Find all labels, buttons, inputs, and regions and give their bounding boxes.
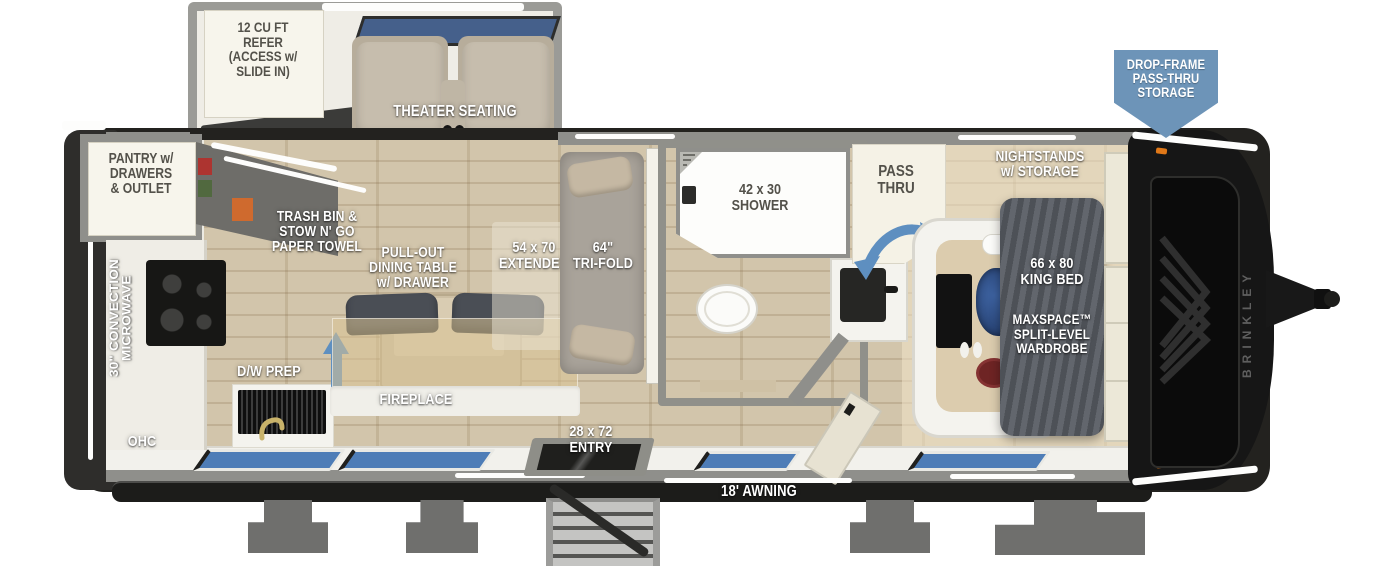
pantry-item-green — [198, 180, 212, 197]
fireplace-label: FIREPLACE — [366, 392, 467, 408]
awning-label: 18' AWNING — [696, 484, 822, 500]
window-living — [337, 449, 495, 471]
shower-corner-shelf-icon — [680, 152, 702, 174]
bath-faucet-icon — [884, 286, 898, 293]
floorplan-diagram: 12 CU FT REFER (ACCESS w/ SLIDE IN) THEA… — [0, 0, 1400, 566]
nightstands-label: NIGHTSTANDS w/ STORAGE — [977, 150, 1103, 180]
slipper-right — [973, 342, 982, 358]
theater-label: THEATER SEATING — [367, 104, 543, 120]
theater-seat-left — [356, 42, 444, 142]
feature-badge-label: DROP-FRAME PASS-THRU STORAGE — [1122, 58, 1209, 100]
pantry-label: PANTRY w/ DRAWERS & OUTLET — [92, 152, 189, 198]
kitchen-faucet-icon — [256, 408, 290, 442]
refer-label: 12 CU FT REFER (ACCESS w/ SLIDE IN) — [210, 20, 316, 79]
microwave-label: 30" CONVECTION MICROWAVE — [108, 242, 148, 394]
hitch-tongue — [1266, 266, 1342, 334]
stabilizer-jack-1 — [248, 500, 328, 553]
shower-label: 42 x 30 SHOWER — [710, 182, 811, 214]
brinkley-chevron-logo — [1154, 230, 1232, 410]
bottom-wall-trim-2 — [950, 474, 1075, 479]
bedroom-tv — [936, 274, 972, 348]
brand-name: BRINKLEY — [1240, 238, 1256, 408]
theater-seat-right — [462, 42, 550, 142]
entry-label: 28 x 72 ENTRY — [545, 424, 637, 455]
slipper-left — [960, 342, 969, 358]
passthru-label: PASS THRU — [861, 164, 932, 198]
toilet-seat — [704, 291, 750, 327]
shower-head-icon — [682, 186, 696, 204]
top-wall-trim-2 — [958, 135, 1076, 140]
cooktop — [146, 260, 226, 346]
top-wall-trim-1 — [575, 134, 675, 139]
bathroom-door-opening — [700, 380, 776, 392]
dw-prep-label: D/W PREP — [223, 364, 315, 380]
tongue-jack-steps — [995, 500, 1145, 555]
marker-light-top — [1156, 147, 1168, 154]
rear-top-trim — [62, 121, 106, 130]
pantry-item-red — [198, 158, 212, 175]
slideout-roof-trim — [322, 3, 524, 11]
window-bedroom — [907, 451, 1051, 471]
window-kitchen — [192, 449, 345, 471]
wardrobe-label: MAXSPACE™ SPLIT-LEVEL WARDROBE — [1007, 312, 1098, 356]
king-bed-label: 66 x 80 KING BED — [1010, 256, 1094, 287]
dining-label: PULL-OUT DINING TABLE w/ DRAWER — [350, 246, 476, 291]
trifold-label: 64" TRI-FOLD — [567, 240, 639, 271]
stabilizer-jack-3 — [850, 500, 930, 553]
window-hall — [693, 451, 801, 471]
ohc-label: OHC — [117, 434, 167, 450]
pantry-item-orange — [232, 198, 253, 221]
stabilizer-jack-2 — [406, 500, 478, 553]
